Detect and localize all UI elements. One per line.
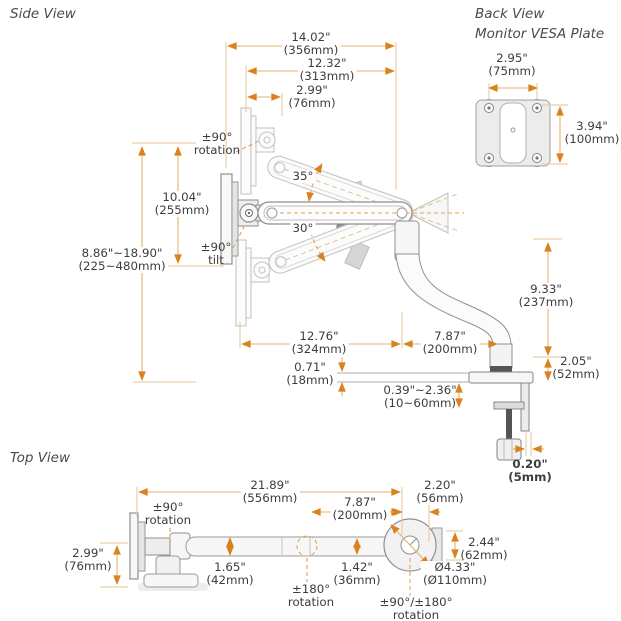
dim-height-adjust: 8.86"~18.90"(225~480mm) bbox=[76, 247, 167, 273]
pedestal-base bbox=[144, 574, 198, 587]
dim-clamp-height: 2.05"(52mm) bbox=[552, 355, 599, 381]
dim-vesa-hole-width: 2.95"(75mm) bbox=[488, 52, 535, 78]
dim-plate-thickness: 0.71"(18mm) bbox=[286, 361, 333, 387]
side-view-title: Side View bbox=[10, 4, 76, 24]
vesa-plate-tilt-down-ghost bbox=[236, 240, 270, 326]
back-view-title: Back View Monitor VESA Plate bbox=[475, 4, 604, 45]
dim-side-width-arm: 12.32"(313mm) bbox=[298, 57, 357, 83]
wall-plate-top bbox=[130, 513, 138, 579]
dim-height-upper: 10.04"(255mm) bbox=[153, 191, 212, 217]
top-view-title: Top View bbox=[10, 448, 70, 468]
back-view-drawing bbox=[476, 100, 550, 167]
dim-clamp-range: 0.39"~2.36"(10~60mm) bbox=[383, 384, 456, 410]
dim-side-width-total: 14.02"(356mm) bbox=[282, 31, 341, 57]
clamp-screw-shaft bbox=[506, 409, 512, 440]
dim-plate-depth: 2.99"(76mm) bbox=[64, 547, 111, 573]
dim-top-arm-section: 7.87"(200mm) bbox=[331, 496, 390, 522]
desk-surface-lines bbox=[337, 373, 469, 382]
dim-side-width-plate: 2.99"(76mm) bbox=[286, 84, 337, 110]
dim-base-offset: 2.20"(56mm) bbox=[414, 479, 465, 505]
dim-base-side: 2.44"(62mm) bbox=[460, 536, 507, 562]
clamp-top-plate bbox=[469, 372, 533, 383]
vesa-center-slot bbox=[500, 103, 526, 163]
label-rotation-vesa: ±90°rotation bbox=[194, 131, 240, 157]
label-rotation-wall: ±90°rotation bbox=[145, 501, 191, 527]
label-tilt: ±90°tilt bbox=[201, 241, 232, 267]
dimension-diagram: Side View Back View Monitor VESA Plate T… bbox=[0, 0, 621, 621]
back-view-subtitle: Monitor VESA Plate bbox=[475, 24, 604, 44]
dim-edge-clearance: 0.20"(5mm) bbox=[508, 458, 552, 484]
arm-top-view bbox=[186, 537, 398, 556]
label-rotation-elbow: ±180°rotation bbox=[288, 583, 334, 609]
clamp-pressure-plate bbox=[494, 402, 524, 409]
dim-joint-width: 1.42"(36mm) bbox=[333, 561, 380, 587]
vesa-plate-tilt-up-ghost bbox=[241, 108, 275, 194]
dim-base-diameter: Ø4.33"(Ø110mm) bbox=[421, 561, 489, 587]
label-angle-up: 35° bbox=[291, 170, 316, 183]
dim-arm-width: 1.65"(42mm) bbox=[206, 561, 253, 587]
dim-vesa-hole-height: 3.94"(100mm) bbox=[565, 120, 620, 146]
dim-reach-front: 7.87"(200mm) bbox=[421, 330, 480, 356]
dim-top-length-total: 21.89"(556mm) bbox=[241, 479, 300, 505]
label-angle-down: 30° bbox=[291, 222, 316, 235]
dim-reach-rear: 12.76"(324mm) bbox=[290, 330, 349, 356]
dim-riser-height: 9.33"(237mm) bbox=[517, 283, 576, 309]
label-rotation-base: ±90°/±180°rotation bbox=[379, 596, 452, 621]
